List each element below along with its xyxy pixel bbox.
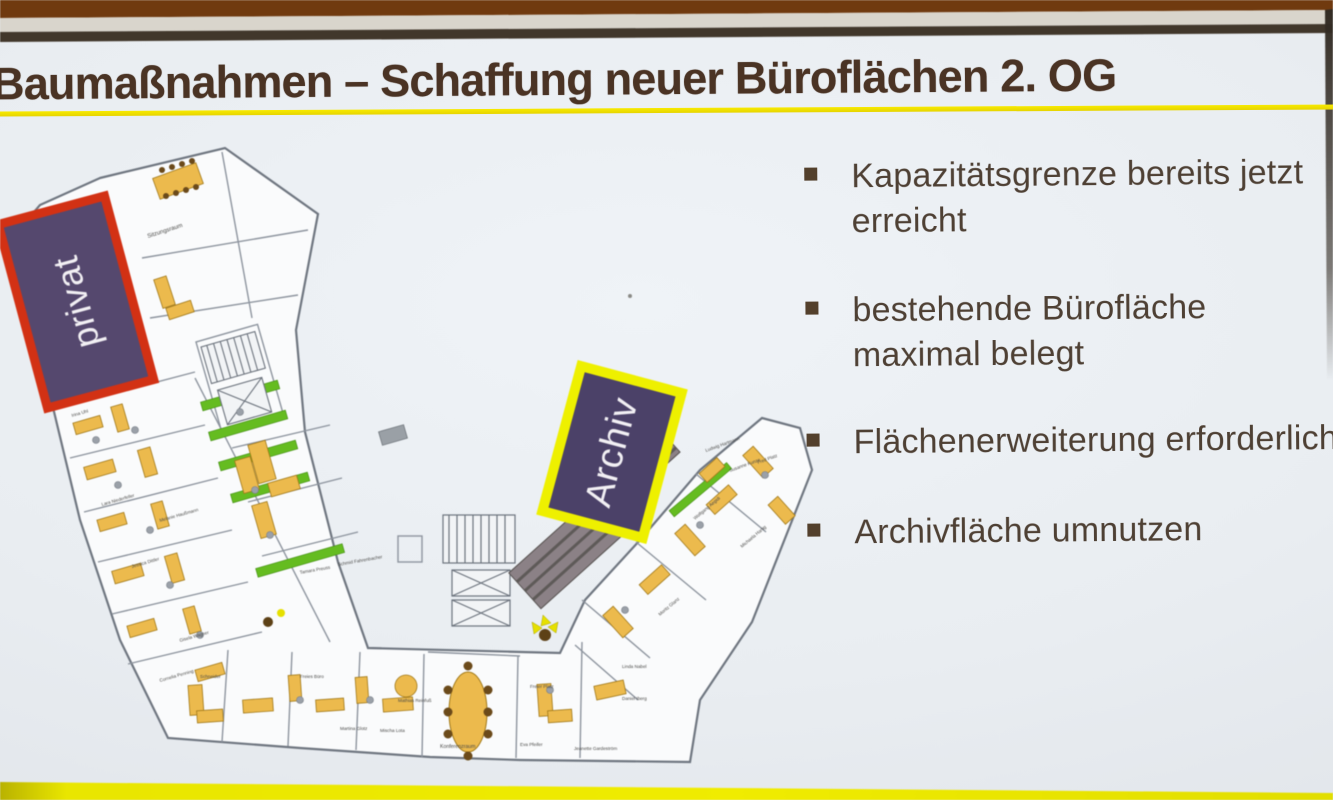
room-label: Konferenzraum <box>440 744 475 750</box>
room-label: Freier Platz <box>530 684 554 689</box>
room-label: Jeanette Gardeström <box>574 746 617 751</box>
bullet-square-icon <box>807 524 820 537</box>
room-label: Schneider <box>200 674 221 679</box>
bullet-item: bestehende Bürofläche maximal belegt <box>799 285 1207 379</box>
bullet-item: Archivfläche umnutzen <box>801 507 1203 555</box>
bullet-square-icon <box>805 302 818 315</box>
elevator-shafts <box>452 570 510 626</box>
room-label: Schmid Fahrenbacher <box>337 554 383 567</box>
bullet-list: Kapazitätsgrenze bereits jetzt erreicht … <box>798 149 1333 594</box>
bullet-text: Archivfläche umnutzen <box>854 507 1203 555</box>
slide-title: Baumaßnahmen – Schaffung neuer Bürofläch… <box>0 50 1116 111</box>
bullet-line: Archivfläche umnutzen <box>854 507 1203 555</box>
building-outline <box>3 148 812 762</box>
room-label: Martina Glotz <box>340 726 368 731</box>
bullet-item: Kapazitätsgrenze bereits jetzt erreicht <box>798 150 1304 244</box>
bullet-line: maximal belegt <box>853 330 1207 378</box>
bullet-text: Flächenerweiterung erforderlich <box>853 416 1333 465</box>
bullet-line: Flächenerweiterung erforderlich <box>853 416 1333 465</box>
staircase <box>443 515 515 563</box>
bullet-text: Kapazitätsgrenze bereits jetzt erreicht <box>851 150 1304 244</box>
room-label: Mischa Lota <box>380 728 405 733</box>
photo-top-wall <box>0 0 1333 42</box>
bullet-line: erreicht <box>851 195 1303 244</box>
room-label: Eva Pfeifer <box>520 742 543 747</box>
bullet-line: Kapazitätsgrenze bereits jetzt <box>851 150 1303 199</box>
bullet-line: bestehende Bürofläche <box>852 285 1206 333</box>
slide-bottom-yellow-band <box>0 782 1333 800</box>
archiv-overlay: Archiv <box>542 366 681 538</box>
bullet-item: Flächenerweiterung erforderlich <box>800 416 1333 466</box>
bullet-square-icon <box>807 434 820 447</box>
bullet-square-icon <box>804 168 817 181</box>
room-label: Freies Büro <box>300 674 324 679</box>
room-label: Daniel Iberg <box>622 696 647 701</box>
room-label: Linda Nabel <box>622 664 647 669</box>
bullet-text: bestehende Bürofläche maximal belegt <box>852 285 1207 378</box>
room-label: Mathias Reinfuß <box>398 698 432 703</box>
